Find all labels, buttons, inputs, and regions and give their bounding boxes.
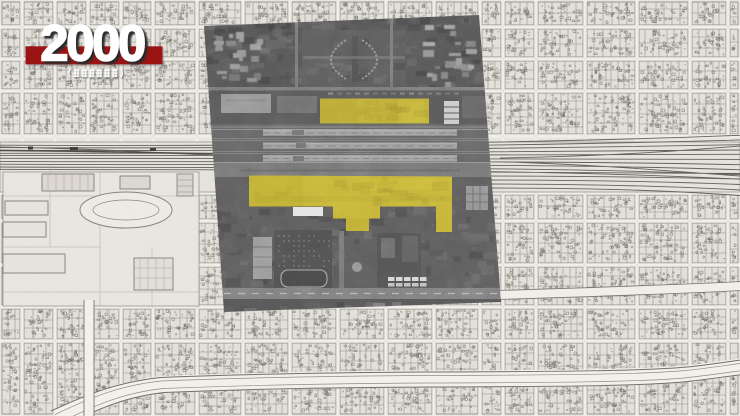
svg-text:2000: 2000	[40, 15, 145, 72]
